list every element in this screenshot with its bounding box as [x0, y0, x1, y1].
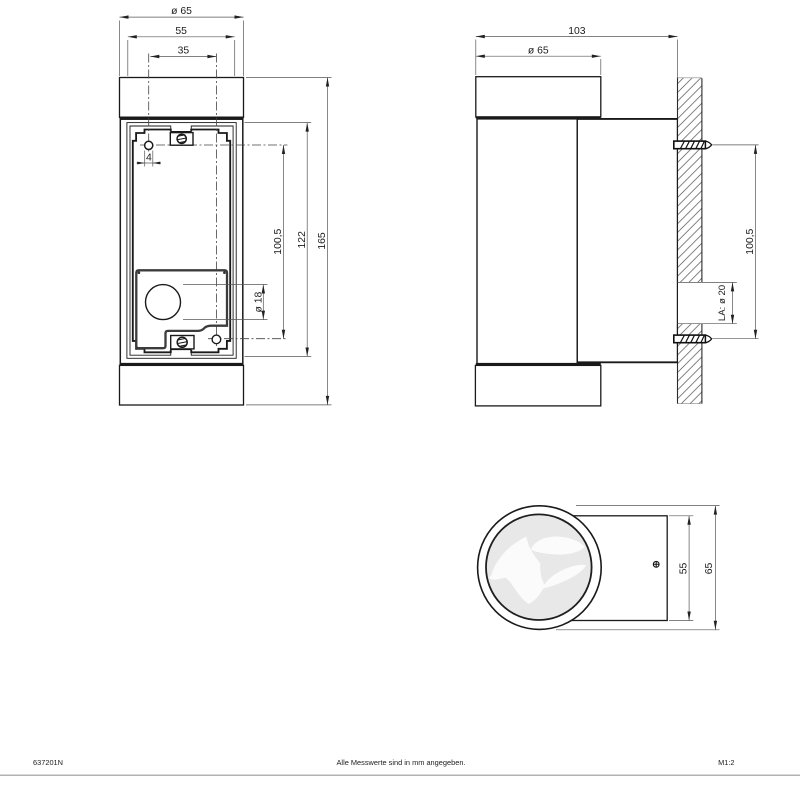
- svg-text:4: 4: [146, 152, 152, 163]
- svg-text:100,5: 100,5: [745, 228, 756, 254]
- svg-text:65: 65: [704, 563, 715, 575]
- svg-text:ø 65: ø 65: [528, 45, 549, 56]
- svg-text:55: 55: [175, 26, 187, 37]
- svg-text:122: 122: [297, 231, 308, 249]
- svg-text:ø 18: ø 18: [253, 291, 264, 312]
- svg-text:35: 35: [178, 46, 190, 57]
- svg-text:637201N: 637201N: [33, 758, 63, 767]
- svg-text:M1:2: M1:2: [718, 758, 734, 767]
- svg-text:165: 165: [317, 232, 328, 250]
- svg-text:ø 65: ø 65: [171, 6, 192, 17]
- svg-text:Alle Messwerte sind in mm ange: Alle Messwerte sind in mm angegeben.: [337, 758, 466, 767]
- svg-text:55: 55: [679, 563, 690, 575]
- svg-text:LA: ø 20: LA: ø 20: [717, 285, 728, 321]
- svg-text:100,5: 100,5: [273, 228, 284, 254]
- svg-text:103: 103: [568, 26, 586, 37]
